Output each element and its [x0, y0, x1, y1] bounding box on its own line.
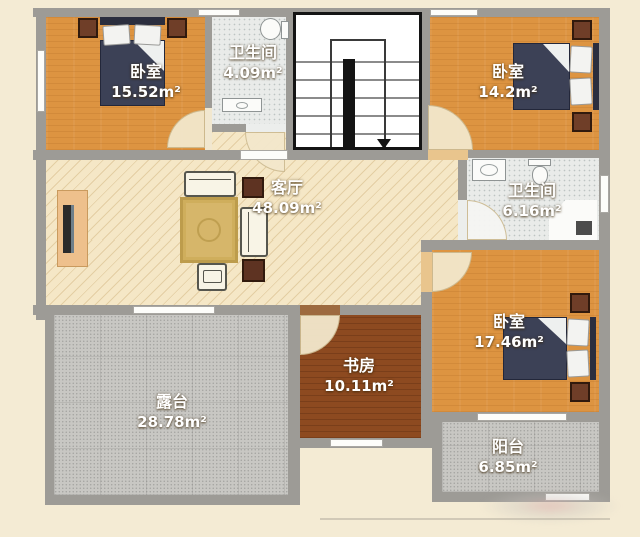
pillow	[566, 349, 589, 377]
wall-bathroom-mid-bottom	[421, 240, 610, 250]
sink-basin	[480, 164, 498, 176]
room-area: 15.52m²	[111, 83, 181, 103]
room-name: 阳台	[478, 437, 537, 458]
floor-plan: 卧室 15.52m² 卫生间 4.09m² 卧室 14.2m² 客厅 48.09…	[0, 0, 640, 537]
shower-drain	[576, 221, 592, 235]
sofa-back-line	[189, 179, 231, 180]
nightstand	[167, 18, 187, 38]
room-name: 卫生间	[502, 181, 561, 202]
window-top-2	[430, 9, 478, 16]
door-opening-bedroom-bottom-right	[421, 252, 432, 292]
sink-counter	[472, 159, 506, 181]
toilet-tank	[281, 21, 289, 39]
bed-headboard	[590, 317, 596, 380]
room-label-bathroom-mid: 卫生间 6.16m²	[502, 181, 561, 221]
door-opening-bathroom-mid	[458, 200, 467, 240]
room-name: 卧室	[111, 62, 181, 83]
door-opening-bedroom-top-left	[205, 108, 212, 150]
wall-living-bottom	[33, 305, 430, 315]
nightstand	[572, 20, 592, 40]
room-area: 10.11m²	[324, 377, 394, 397]
wall-terrace-right	[288, 305, 300, 505]
toilet	[260, 18, 281, 40]
room-area: 14.2m²	[478, 83, 537, 103]
room-label-terrace: 露台 28.78m²	[137, 392, 207, 432]
room-name: 书房	[324, 356, 394, 377]
wall-terrace-left	[45, 305, 54, 505]
nightstand	[572, 112, 592, 132]
bed-headboard	[593, 43, 599, 110]
armchair	[197, 263, 227, 291]
room-area: 17.46m²	[474, 333, 544, 353]
window-left-bedroom	[37, 50, 45, 112]
nightstand	[570, 382, 590, 402]
room-label-living-room: 客厅 48.09m²	[252, 178, 322, 218]
toilet-tank	[528, 159, 551, 166]
rug-medallion	[197, 218, 221, 242]
door-opening-bedroom-top-right	[428, 150, 468, 160]
room-label-bedroom-bottom-right: 卧室 17.46m²	[474, 312, 544, 352]
rug	[180, 197, 238, 263]
wall-balcony-left	[432, 412, 442, 502]
room-name: 露台	[137, 392, 207, 413]
window-bedroom-balcony	[477, 413, 567, 421]
bed-headboard	[100, 17, 165, 25]
page-edge-line	[320, 518, 610, 520]
pillow	[566, 318, 589, 346]
room-area: 28.78m²	[137, 413, 207, 433]
room-name: 卧室	[474, 312, 544, 333]
room-label-bathroom-top: 卫生间 4.09m²	[223, 43, 282, 83]
window-terrace-door	[133, 306, 215, 314]
room-label-balcony: 阳台 6.85m²	[478, 437, 537, 477]
window-top-1	[198, 9, 240, 16]
pillow	[102, 24, 130, 46]
stair-center-divider	[343, 59, 355, 147]
wall-right	[599, 8, 610, 502]
room-area: 6.16m²	[502, 202, 561, 222]
room-name: 客厅	[252, 178, 322, 199]
room-label-bedroom-top-left: 卧室 15.52m²	[111, 62, 181, 102]
room-label-bedroom-top-right: 卧室 14.2m²	[478, 62, 537, 102]
sink-basin	[236, 102, 248, 109]
nightstand	[78, 18, 98, 38]
sofa-back-line	[248, 212, 249, 252]
wall-terrace-bottom	[45, 495, 300, 505]
room-area: 6.85m²	[478, 458, 537, 478]
bathroom-vanity	[222, 98, 262, 112]
nightstand	[570, 293, 590, 313]
pillow	[569, 45, 592, 73]
room-name: 卫生间	[223, 43, 282, 64]
room-name: 卧室	[478, 62, 537, 83]
window-study-bottom	[330, 439, 383, 447]
room-label-study: 书房 10.11m²	[324, 356, 394, 396]
tv-icon	[63, 205, 74, 253]
sofa-three-seat	[184, 171, 236, 197]
pillow	[133, 24, 161, 45]
bed-sheet-fold	[543, 44, 569, 72]
door-sill-vestibule	[240, 150, 288, 160]
room-area: 4.09m²	[223, 64, 282, 84]
down-arrow-icon	[377, 139, 391, 149]
staircase	[293, 12, 422, 150]
side-table	[242, 259, 265, 282]
window-right-bathroom	[600, 175, 609, 213]
pillow	[569, 77, 592, 105]
door-opening-study	[300, 305, 340, 315]
stair-walk-line	[330, 39, 386, 147]
door-opening-bathroom-top	[246, 124, 286, 132]
room-area: 48.09m²	[252, 199, 322, 219]
armchair-seat	[203, 270, 222, 283]
